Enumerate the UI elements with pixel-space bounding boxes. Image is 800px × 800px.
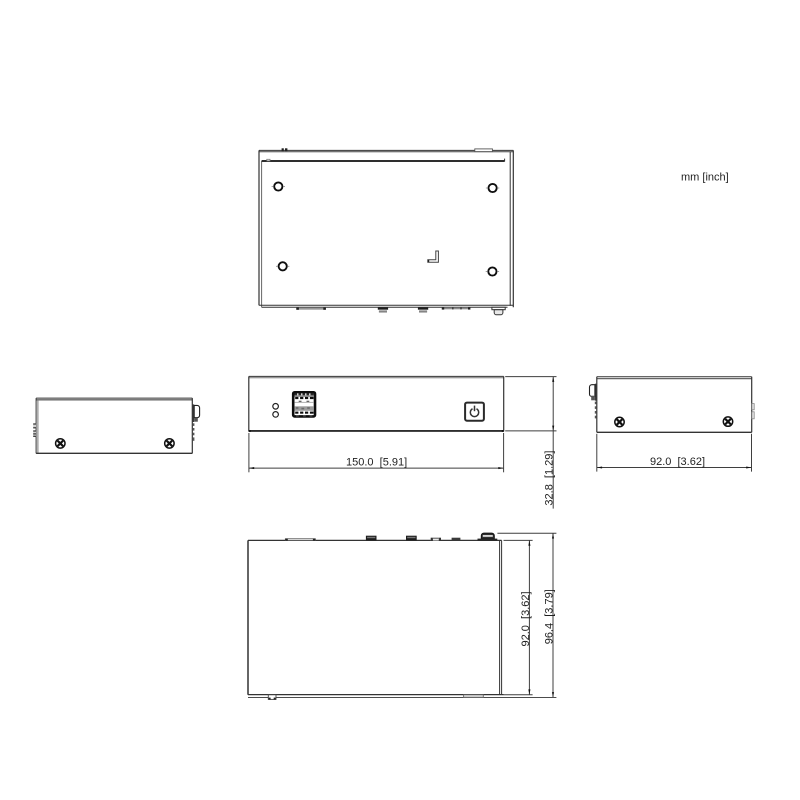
svg-text:96.4 [3.79]: 96.4 [3.79] xyxy=(543,589,555,644)
svg-text:mm [inch]: mm [inch] xyxy=(681,172,729,184)
svg-text:92.0 [3.62]: 92.0 [3.62] xyxy=(650,456,705,468)
svg-text:92.0 [3.62]: 92.0 [3.62] xyxy=(520,591,532,646)
svg-text:150.0 [5.91]: 150.0 [5.91] xyxy=(346,457,407,469)
svg-text:32.8 [1.29]: 32.8 [1.29] xyxy=(544,451,556,506)
